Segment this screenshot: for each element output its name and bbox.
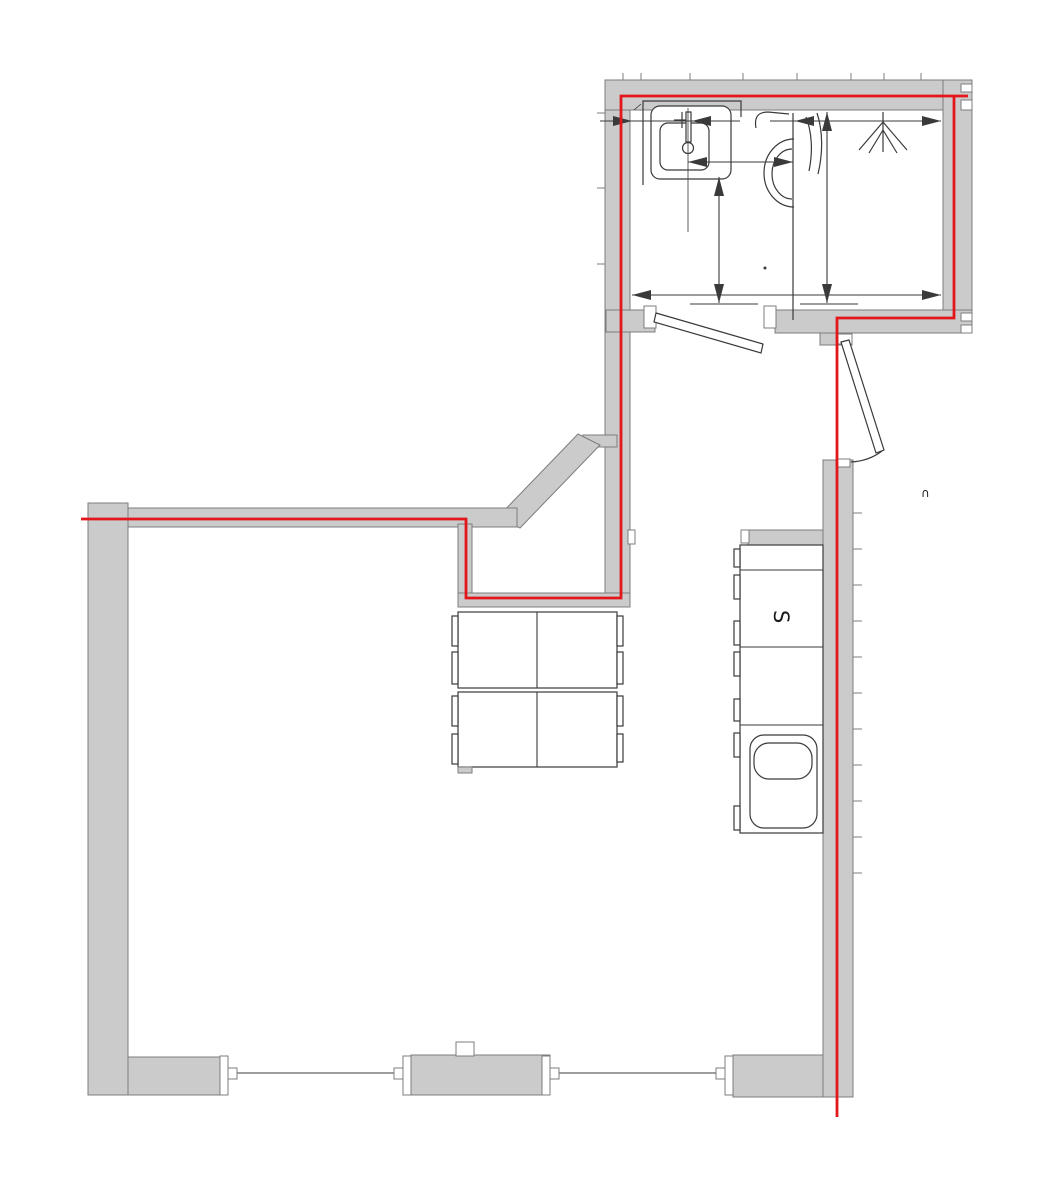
table-tab: [617, 696, 623, 726]
bathroom-fixtures: [643, 101, 907, 320]
counter-run: [740, 545, 823, 833]
counter-hinge-tab: [734, 806, 740, 830]
wall-segment: [411, 1055, 550, 1095]
window-connector: [228, 1068, 237, 1079]
dimension-dot: [764, 267, 767, 270]
window-frame: [725, 1056, 733, 1095]
kitchen-stub-cap: [741, 530, 749, 543]
window-frame: [220, 1056, 228, 1095]
door-leaf: [841, 340, 884, 453]
wall-segment: [605, 80, 630, 607]
dim-arrow-right: [922, 290, 941, 300]
entry-door: [841, 340, 884, 462]
dim-arrow-down: [822, 284, 832, 303]
wall-segment: [748, 530, 823, 545]
window-frame: [542, 1056, 550, 1095]
table-tab: [452, 696, 458, 726]
door-jamb: [764, 306, 776, 328]
wall-segment: [775, 310, 972, 333]
wall-segment: [88, 503, 128, 1095]
toilet: [756, 112, 822, 320]
counter-hinge-tab: [734, 575, 740, 599]
wall-segment: [128, 1057, 220, 1095]
dim-arrow-right: [774, 157, 793, 167]
bathroom-door: [654, 313, 763, 353]
window-connector: [550, 1068, 559, 1079]
dim-arrow-left: [632, 290, 651, 300]
dim-arrow-up: [714, 177, 724, 196]
window-connector: [716, 1068, 725, 1079]
wall-switch: [628, 530, 635, 544]
dim-arrow-down: [714, 284, 724, 303]
shower-symbol: [859, 112, 907, 153]
counter-hinge-tab: [734, 652, 740, 676]
window-connector: [394, 1068, 403, 1079]
small-arc-mark: ∩: [921, 486, 930, 500]
table-tab: [617, 616, 623, 646]
appliance-label-s: S: [769, 610, 793, 623]
window-right: [542, 1056, 733, 1095]
toilet-bowl-inner: [772, 149, 792, 199]
window-frame: [403, 1056, 411, 1095]
wall-notch: [961, 325, 972, 333]
red-route-east: [837, 96, 954, 1117]
wall-segment: [943, 80, 972, 312]
dim-arrow-left: [795, 116, 814, 126]
floor-plan-canvas: S ∩: [0, 0, 1052, 1200]
toilet-back: [756, 112, 790, 128]
door-jamb: [644, 306, 656, 328]
table-stub: [458, 767, 472, 773]
counter-hinge-tab: [734, 733, 740, 757]
walls: [88, 80, 972, 1097]
square-table-group: [452, 612, 623, 773]
table-tab: [452, 734, 458, 764]
wall-notch: [961, 313, 972, 321]
table-tab: [452, 652, 458, 684]
counter-hinge-tab: [734, 621, 740, 645]
faucet-spout: [686, 112, 691, 142]
counter-hinge-tab: [734, 549, 740, 567]
table-tab: [452, 616, 458, 646]
counter-hinge-tab: [734, 699, 740, 721]
pier-tab: [456, 1042, 474, 1056]
toilet-cistern: [817, 113, 822, 174]
kitchen-counter: S: [734, 545, 823, 833]
window-left: [220, 1056, 411, 1095]
floor-plan-page: S ∩: [0, 0, 1052, 1200]
door-leaf: [654, 313, 763, 353]
wall-notch: [961, 84, 972, 92]
table-tab: [617, 734, 623, 762]
bathroom-sink: [643, 101, 741, 185]
dim-arrow-right: [922, 116, 941, 126]
wall-notch: [961, 100, 972, 110]
wall-segment: [458, 593, 630, 607]
table-tab: [617, 652, 623, 684]
